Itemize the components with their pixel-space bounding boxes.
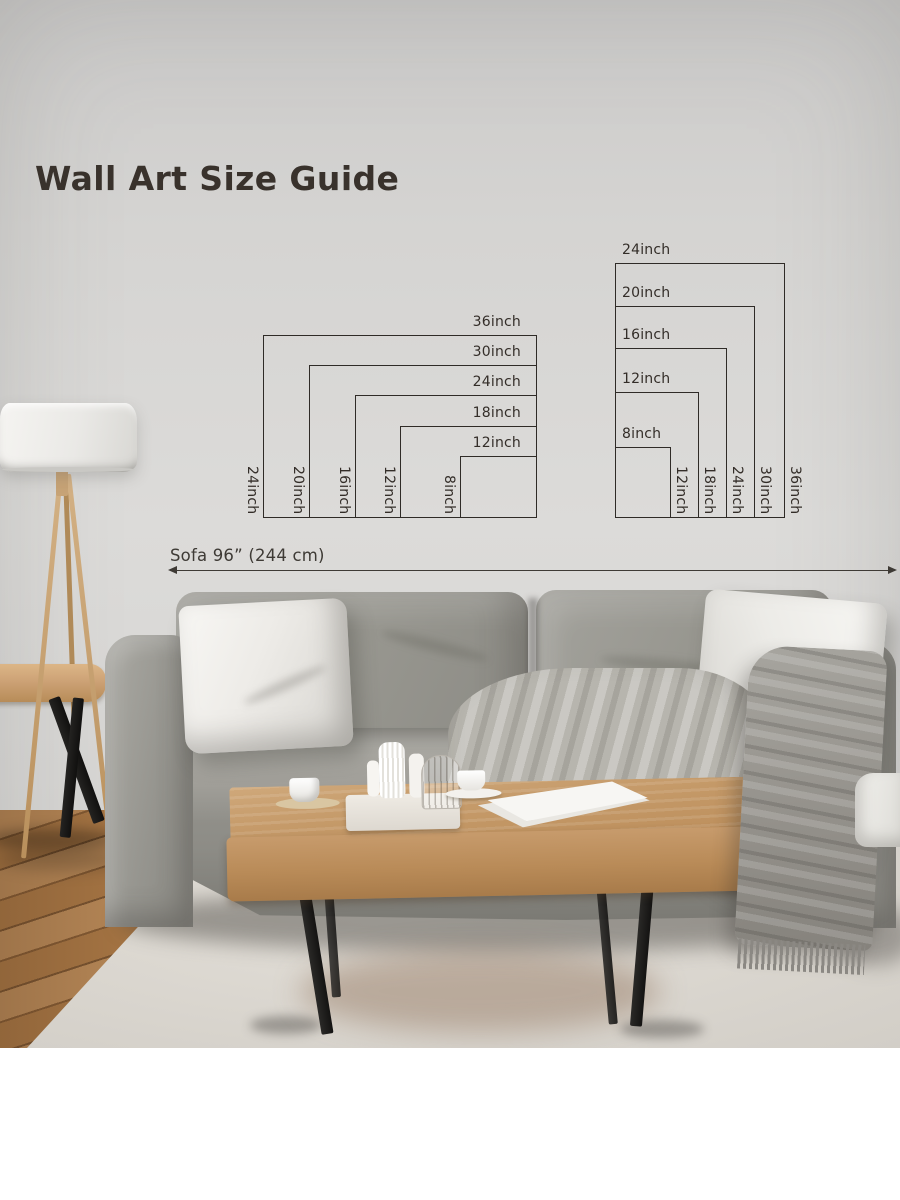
landscape-height-label-12: 12inch xyxy=(381,466,397,514)
portrait-height-label-18: 18inch xyxy=(701,466,717,514)
landscape-width-label-30: 30inch xyxy=(473,344,521,360)
portrait-height-label-24: 24inch xyxy=(729,466,745,514)
portrait-width-label-24: 24inch xyxy=(622,242,670,258)
landscape-rect-12x8 xyxy=(460,456,537,518)
living-room-photo: Wall Art Size Guide 36inch 30inch 24inch… xyxy=(0,0,900,1048)
wall-art-size-guide-image: Wall Art Size Guide 36inch 30inch 24inch… xyxy=(0,0,900,1200)
portrait-rect-8x12 xyxy=(615,447,671,518)
fluted-vase xyxy=(378,742,405,799)
landscape-width-label-24: 24inch xyxy=(473,374,521,390)
table-leg-rear-right xyxy=(595,874,618,1024)
portrait-height-label-30: 30inch xyxy=(757,466,773,514)
teacup-left xyxy=(289,778,319,803)
landscape-width-label-12: 12inch xyxy=(473,435,521,451)
portrait-width-label-16: 16inch xyxy=(622,327,670,343)
lamp-shade-rim xyxy=(2,467,135,472)
landscape-height-label-8: 8inch xyxy=(441,475,457,514)
lamp-hub xyxy=(56,470,68,496)
sofa-dimension-label: Sofa 96” (244 cm) xyxy=(170,546,325,565)
portrait-width-label-20: 20inch xyxy=(622,285,670,301)
portrait-width-label-8: 8inch xyxy=(622,426,661,442)
sofa-armrest-left xyxy=(105,635,193,927)
teacup-right xyxy=(457,770,485,791)
coffee-table xyxy=(225,776,762,1047)
landscape-height-label-16: 16inch xyxy=(336,466,352,514)
white-bottle xyxy=(367,760,380,796)
sofa-dimension-arrow xyxy=(170,570,895,571)
sofa-dimension: Sofa 96” (244 cm) xyxy=(168,546,898,576)
throw-pillow-left xyxy=(178,598,354,755)
wire-dome xyxy=(421,755,462,810)
portrait-width-label-12: 12inch xyxy=(622,371,670,387)
portrait-height-label-12: 12inch xyxy=(673,466,689,514)
table-edge xyxy=(226,827,755,902)
page-title: Wall Art Size Guide xyxy=(35,158,399,200)
landscape-height-label-20: 20inch xyxy=(290,466,306,514)
landscape-width-label-18: 18inch xyxy=(473,405,521,421)
armchair-cushion xyxy=(855,773,900,847)
landscape-height-label-24: 24inch xyxy=(244,466,260,514)
portrait-height-label-36: 36inch xyxy=(787,466,803,514)
landscape-width-label-36: 36inch xyxy=(473,314,521,330)
lamp-shade xyxy=(0,403,137,472)
